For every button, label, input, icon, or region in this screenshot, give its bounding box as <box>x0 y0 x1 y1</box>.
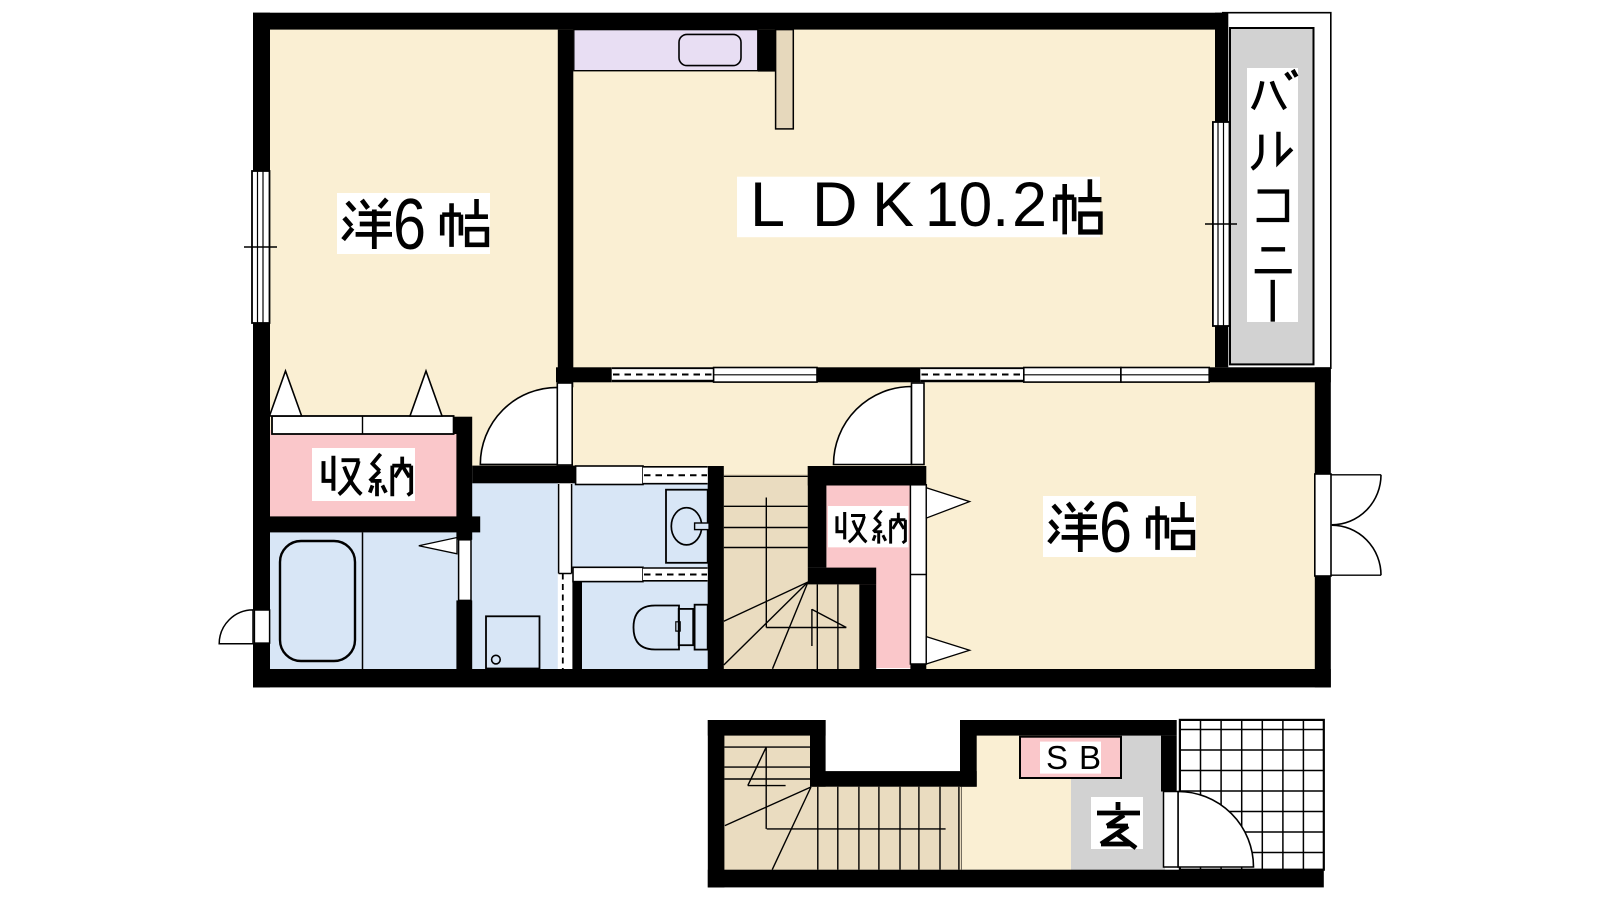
svg-text:2: 2 <box>1012 170 1047 240</box>
svg-text:K: K <box>872 170 914 240</box>
svg-text:D: D <box>812 170 858 240</box>
svg-text:L: L <box>750 170 785 240</box>
svg-text:SB: SB <box>1046 739 1112 776</box>
svg-text:10.: 10. <box>925 170 1009 240</box>
